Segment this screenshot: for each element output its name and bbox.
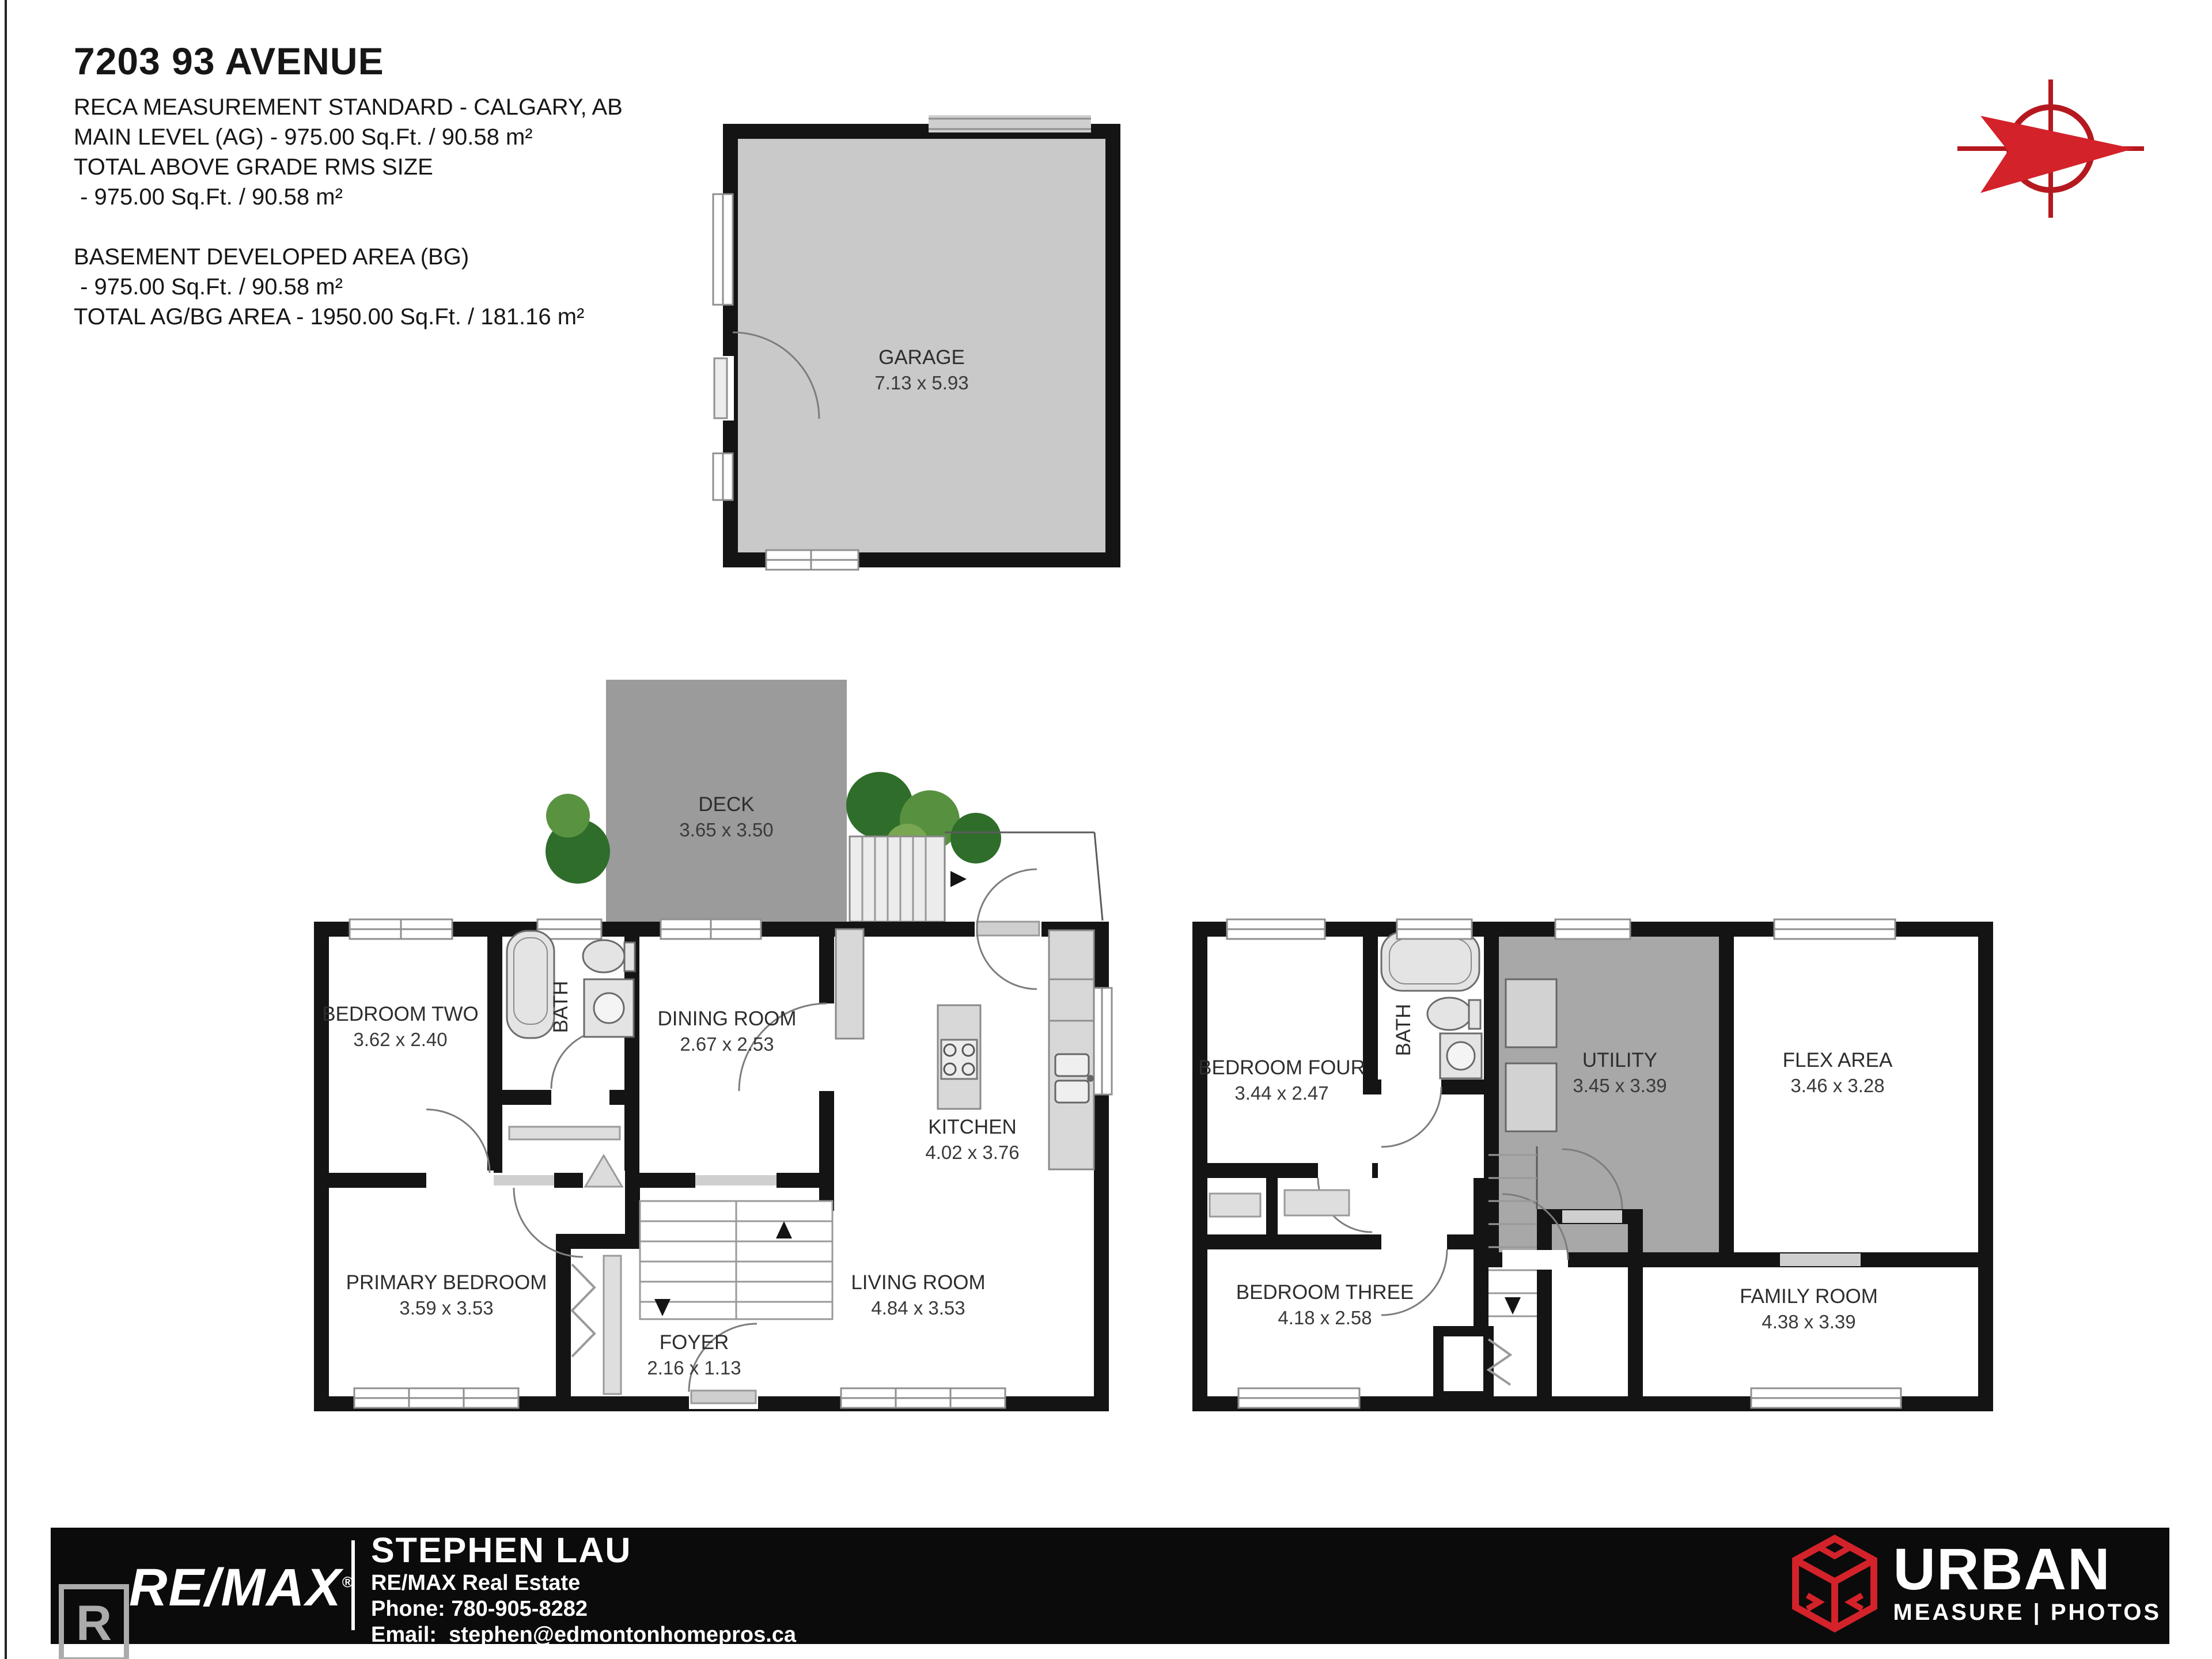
window bbox=[1227, 919, 1325, 939]
phone-label: Phone: bbox=[371, 1597, 445, 1621]
room-label: BEDROOM TWO bbox=[322, 1003, 479, 1025]
kitchen-counter bbox=[1049, 930, 1094, 1169]
window bbox=[354, 1388, 518, 1408]
room-dims: 4.02 x 3.76 bbox=[925, 1142, 1019, 1163]
window bbox=[350, 919, 452, 939]
window bbox=[1397, 919, 1472, 939]
remax-wordmark: RE/MAX bbox=[129, 1558, 342, 1617]
window bbox=[841, 1388, 1005, 1408]
room-dims: 3.59 x 3.53 bbox=[399, 1297, 493, 1319]
room-label: UTILITY bbox=[1582, 1049, 1657, 1071]
window bbox=[1238, 1388, 1359, 1408]
sink-icon bbox=[584, 979, 634, 1037]
main-level-plan: BEDROOM TWO 3.62 x 2.40 BATH DINING ROOM… bbox=[321, 869, 1112, 1411]
kitchen-counter bbox=[836, 929, 863, 1039]
urban-subtitle: MEASURE | PHOTOS bbox=[1893, 1600, 2161, 1626]
room-dims: 4.18 x 2.58 bbox=[1278, 1307, 1372, 1328]
garage-window bbox=[766, 550, 858, 570]
sink-icon bbox=[1440, 1033, 1482, 1078]
north-arrow-icon bbox=[1957, 79, 2144, 218]
urban-title: URBAN bbox=[1893, 1541, 2161, 1597]
bathtub-icon bbox=[1381, 932, 1479, 991]
room-label: FAMILY ROOM bbox=[1740, 1285, 1878, 1308]
window bbox=[1751, 1388, 1901, 1408]
garage-dims: 7.13 x 5.93 bbox=[874, 372, 968, 393]
window bbox=[661, 919, 761, 939]
room-label: BEDROOM FOUR bbox=[1198, 1056, 1365, 1079]
wall-opening bbox=[695, 1175, 777, 1185]
room-label: DINING ROOM bbox=[657, 1007, 796, 1030]
email-label: Email: bbox=[371, 1623, 437, 1647]
room-dims: 2.16 x 1.13 bbox=[647, 1357, 741, 1378]
room-dims: 3.46 x 3.28 bbox=[1790, 1075, 1884, 1096]
room-dims: 3.62 x 2.40 bbox=[353, 1029, 447, 1050]
floorplan-drawing: GARAGE 7.13 x 5.93 DECK 3.65 x 3.50 bbox=[0, 0, 2212, 1659]
room-label: FOYER bbox=[660, 1331, 729, 1354]
garage-label: GARAGE bbox=[878, 346, 965, 369]
wall-opening bbox=[1562, 1210, 1622, 1223]
window bbox=[1774, 919, 1895, 939]
toilet-icon bbox=[583, 940, 635, 972]
stair-direction-arrow bbox=[950, 871, 967, 887]
room-label: KITCHEN bbox=[928, 1116, 1017, 1138]
agent-company: RE/MAX Real Estate bbox=[371, 1570, 796, 1596]
realtor-logo-icon: R bbox=[59, 1584, 129, 1659]
wall-opening bbox=[494, 1175, 554, 1185]
garage-window bbox=[713, 194, 733, 305]
bathtub-icon bbox=[507, 931, 554, 1038]
deck-label: DECK bbox=[698, 793, 754, 816]
agent-email: Email: stephen@edmontonhomepros.ca bbox=[371, 1622, 796, 1648]
room-dims: 3.45 x 3.39 bbox=[1573, 1075, 1666, 1096]
agent-phone: Phone: 780-905-8282 bbox=[371, 1596, 796, 1622]
plant-icon bbox=[546, 794, 610, 884]
urban-measure-logo: URBAN MEASURE | PHOTOS bbox=[1786, 1535, 2161, 1633]
garage-door bbox=[929, 115, 1091, 132]
washer-icon bbox=[1506, 979, 1556, 1047]
floorplan-page: 7203 93 AVENUE RECA MEASUREMENT STANDARD… bbox=[0, 0, 2212, 1659]
wall-opening bbox=[1780, 1253, 1861, 1266]
deck-dims: 3.65 x 3.50 bbox=[679, 819, 773, 840]
main-stairs bbox=[640, 1201, 832, 1319]
dryer-icon bbox=[1506, 1063, 1556, 1131]
urban-measure-logo-icon bbox=[1786, 1535, 1884, 1633]
window bbox=[1092, 988, 1112, 1094]
kitchen-island bbox=[938, 1005, 980, 1109]
room-label: LIVING ROOM bbox=[851, 1271, 985, 1294]
room-label: BATH bbox=[550, 981, 572, 1033]
closet-shelf bbox=[509, 1127, 620, 1139]
room-dims: 3.44 x 2.47 bbox=[1234, 1082, 1328, 1104]
email-address: stephen@edmontonhomepros.ca bbox=[449, 1623, 796, 1647]
room-dims: 4.38 x 3.39 bbox=[1762, 1311, 1855, 1332]
phone-number: 780-905-8282 bbox=[451, 1597, 588, 1621]
deck-stairs bbox=[850, 836, 967, 922]
basement-plan: BEDROOM FOUR 3.44 x 2.47 BATH UTILITY 3.… bbox=[1198, 919, 1993, 1411]
agent-name: STEPHEN LAU bbox=[371, 1530, 796, 1570]
window bbox=[1555, 919, 1630, 939]
room-label: PRIMARY BEDROOM bbox=[346, 1271, 547, 1294]
remax-logo: RE/MAX® bbox=[129, 1558, 354, 1618]
room-label: BEDROOM THREE bbox=[1236, 1281, 1414, 1304]
realtor-letter: R bbox=[76, 1595, 112, 1652]
room-label: FLEX AREA bbox=[1783, 1049, 1893, 1071]
garage-window bbox=[713, 453, 733, 500]
footer-divider bbox=[351, 1540, 355, 1630]
garage-room bbox=[730, 131, 1113, 560]
toilet-icon bbox=[1427, 998, 1480, 1030]
room-label: BATH bbox=[1392, 1004, 1415, 1056]
room-dims: 2.67 x 2.53 bbox=[680, 1033, 774, 1055]
deck-area: DECK 3.65 x 3.50 bbox=[546, 680, 1103, 923]
room-dims: 4.84 x 3.53 bbox=[871, 1297, 965, 1319]
agent-info-block: STEPHEN LAU RE/MAX Real Estate Phone: 78… bbox=[371, 1530, 796, 1648]
garage-plan: GARAGE 7.13 x 5.93 bbox=[712, 115, 1113, 570]
footer-bar: R REALTOR® RE/MAX® STEPHEN LAU RE/MAX Re… bbox=[51, 1528, 2169, 1644]
